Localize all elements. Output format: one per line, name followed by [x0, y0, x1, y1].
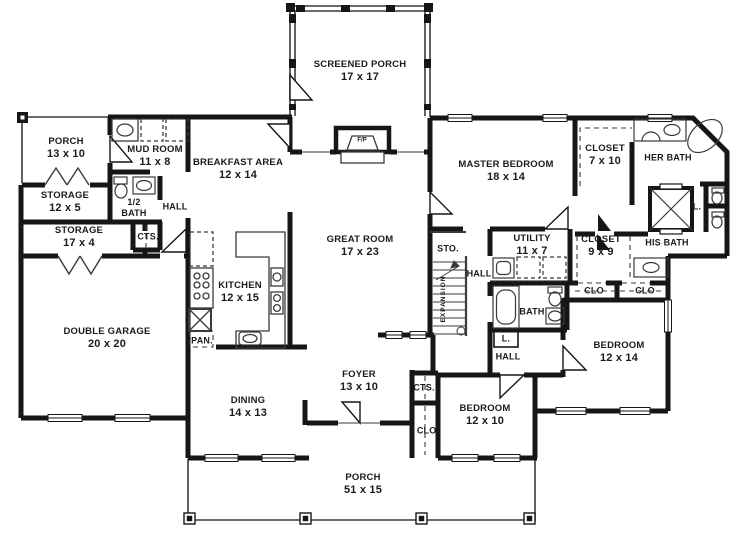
room-name: STORAGE [55, 225, 103, 237]
room-dims: 12 x 5 [41, 202, 89, 216]
mudroom-fixtures [112, 119, 188, 141]
label-clo-left: CLO [584, 285, 604, 296]
room-name: BEDROOM [593, 340, 644, 352]
room-label-dining: DINING 14 x 13 [229, 395, 267, 421]
room-dims: 11 x 8 [127, 156, 182, 170]
label-clo-foyer: CLO. [417, 425, 439, 436]
room-name: 1/2 [121, 197, 146, 208]
label-hall-left: HALL [163, 201, 188, 212]
porch-storage-doors [45, 168, 89, 185]
room-label-bedroom-right: BEDROOM 12 x 14 [593, 340, 644, 366]
room-dims: 7 x 10 [585, 155, 625, 169]
room-label-master-bedroom: MASTER BEDROOM 18 x 14 [458, 159, 553, 185]
label-storage-closet: STO. [437, 243, 459, 254]
room-name: MASTER BEDROOM [458, 159, 553, 171]
room-label-utility: UTILITY 11 x 7 [513, 233, 550, 259]
shower [650, 184, 692, 234]
room-name: UTILITY [513, 233, 550, 245]
label-pantry: PAN. [191, 335, 213, 346]
room-name: BREAKFAST AREA [193, 157, 283, 169]
room-name: CLOSET [581, 234, 621, 246]
room-name: DOUBLE GARAGE [63, 326, 150, 338]
room-label-his-closet: CLOSET 9 x 9 [581, 234, 621, 260]
fireplace [336, 128, 389, 163]
room-label-her-bath: HER BATH [644, 152, 691, 163]
great-room-hall-door [430, 192, 452, 214]
room-dims: 14 x 13 [229, 407, 267, 421]
room-name: PORCH [344, 472, 382, 484]
room-label-garage: DOUBLE GARAGE 20 x 20 [63, 326, 150, 352]
room-name: SCREENED PORCH [314, 59, 407, 71]
room-dims: 13 x 10 [47, 148, 85, 162]
right-bedroom-door [563, 346, 586, 370]
room-dims: 9 x 9 [581, 246, 621, 260]
room-label-mud-room: MUD ROOM 11 x 8 [127, 144, 182, 170]
room-name: BATH [121, 208, 146, 219]
room-dims: 12 x 14 [593, 352, 644, 366]
screened-porch-door-upper [290, 75, 312, 100]
label-hall-bottom: HALL [496, 351, 521, 362]
room-dims: 12 x 14 [193, 169, 283, 183]
label-cts-left: CTS. [137, 231, 158, 242]
label-expansion: EXPANSION [440, 276, 448, 323]
room-name: KITCHEN [218, 280, 262, 292]
utility-fixtures [493, 257, 566, 281]
room-name: CLOSET [585, 143, 625, 155]
front-door [342, 402, 360, 423]
room-label-half-bath: 1/2 BATH [121, 197, 146, 220]
storage-garage-doors [58, 256, 102, 274]
room-label-her-closet: CLOSET 7 x 10 [585, 143, 625, 169]
breakfast-porch-door [268, 124, 290, 148]
screened-porch-post-left [286, 3, 295, 12]
room-dims: 17 x 17 [314, 71, 407, 85]
room-label-storage-b: STORAGE 17 x 4 [55, 225, 103, 251]
porch-posts [184, 513, 535, 524]
room-dims: 12 x 15 [218, 292, 262, 306]
room-name: GREAT ROOM [327, 234, 394, 246]
screened-porch-post-right [424, 3, 433, 12]
label-linen-middle: L. [502, 333, 510, 344]
his-bath-fixtures [634, 258, 668, 277]
room-label-great-room: GREAT ROOM 17 x 23 [327, 234, 394, 260]
label-cts-foyer: CTS. [413, 382, 434, 393]
room-name: STORAGE [41, 190, 89, 202]
room-dims: 12 x 10 [459, 415, 510, 429]
room-dims: 18 x 14 [458, 171, 553, 185]
room-dims: 13 x 10 [340, 381, 378, 395]
room-name: FOYER [340, 369, 378, 381]
room-dims: 20 x 20 [63, 338, 150, 352]
half-bath-fixtures [114, 177, 155, 198]
porch-outlines [22, 6, 535, 520]
room-dims: 17 x 23 [327, 246, 394, 260]
room-dims: 17 x 4 [55, 237, 103, 251]
room-label-kitchen: KITCHEN 12 x 15 [218, 280, 262, 306]
room-label-foyer: FOYER 13 x 10 [340, 369, 378, 395]
room-label-breakfast: BREAKFAST AREA 12 x 14 [193, 157, 283, 183]
room-label-porch-front: PORCH 51 x 15 [344, 472, 382, 498]
room-name: BEDROOM [459, 403, 510, 415]
label-fireplace: F/P [357, 137, 366, 145]
room-label-middle-bath: BATH [519, 306, 544, 317]
floor-plan-image: PORCH 13 x 10 STORAGE 12 x 5 STORAGE 17 … [0, 0, 736, 533]
label-clo-right: CLO [635, 285, 655, 296]
room-name: PORCH [47, 136, 85, 148]
room-dims: 51 x 15 [344, 484, 382, 498]
room-label-bedroom-front: BEDROOM 12 x 10 [459, 403, 510, 429]
room-name: DINING [229, 395, 267, 407]
room-dims: 11 x 7 [513, 245, 550, 259]
her-closet-door [598, 214, 611, 231]
front-bedroom-door [500, 375, 524, 398]
room-label-his-bath: HIS BATH [645, 237, 688, 248]
room-name: MUD ROOM [127, 144, 182, 156]
left-porch-post-center [21, 116, 25, 120]
hall-garage-door [162, 229, 186, 252]
room-label-screened-porch: SCREENED PORCH 17 x 17 [314, 59, 407, 85]
master-bedroom-door [545, 207, 568, 229]
room-label-porch-left: PORCH 13 x 10 [47, 136, 85, 162]
label-linen-her: L. [693, 201, 701, 212]
room-label-storage-a: STORAGE 12 x 5 [41, 190, 89, 216]
label-hall-stairs: HALL [467, 268, 492, 279]
